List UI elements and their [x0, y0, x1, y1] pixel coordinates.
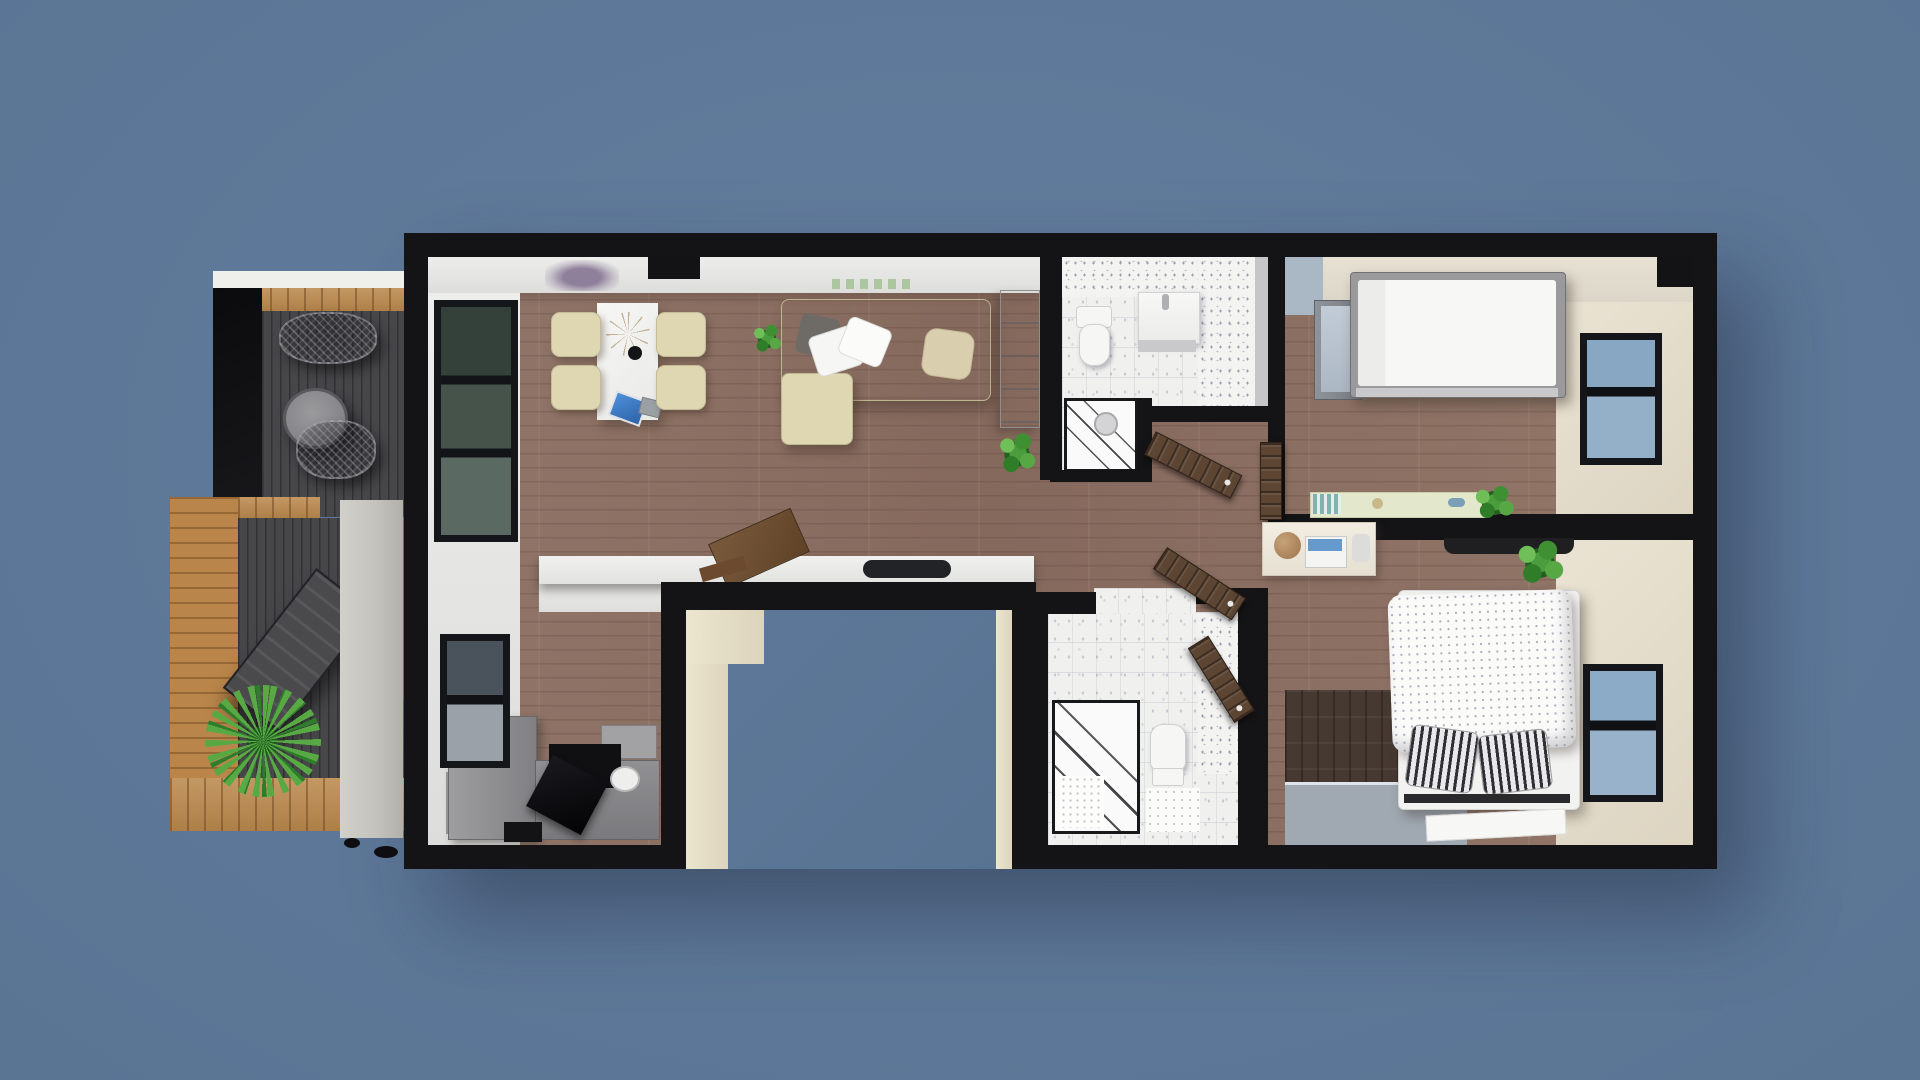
plant-by-cabinet — [993, 426, 1041, 482]
kitchen-sink — [610, 766, 640, 792]
notch-reveal-step — [686, 610, 764, 664]
kitchen-floor-mat — [504, 822, 542, 842]
dining-chair-3 — [656, 312, 706, 357]
terrace-glass-panel — [213, 288, 262, 500]
teddy-bear — [1274, 532, 1301, 559]
bathroom-top-wall-step — [1137, 398, 1152, 482]
bedroom-top-corner-block — [1657, 257, 1693, 287]
bathroom-bottom-wall-right — [1238, 588, 1268, 869]
clerestory-window-slot — [648, 257, 700, 279]
bed-pillow-striped-1 — [1404, 724, 1480, 795]
notch-wall-right — [1012, 610, 1048, 869]
dining-chair-4 — [656, 365, 706, 410]
counter-return-face — [539, 584, 661, 612]
floor-plan-render — [0, 0, 1920, 1080]
wall-art — [545, 260, 619, 291]
notch-wall-left — [661, 582, 686, 869]
concrete-pillar — [340, 500, 403, 838]
wire-chair-1 — [279, 312, 377, 364]
gray-cabinet — [1000, 290, 1040, 428]
door-handle-icon — [1226, 600, 1234, 608]
serving-tray — [863, 560, 951, 578]
bed-top-mattress — [1358, 280, 1556, 386]
living-north-wall-face — [428, 257, 1040, 293]
bedroom-top-door-leaf — [1260, 442, 1282, 520]
outer-wall-bottom-left — [404, 845, 686, 869]
palm-plant — [205, 685, 321, 797]
sideboard-fish-trinket — [1448, 498, 1465, 507]
bathroom-top-wall-face-e — [1198, 257, 1255, 415]
toilet-bottom-tank — [1152, 768, 1184, 786]
bathroom-top-wall-left — [1040, 257, 1062, 480]
shower-tray-mat — [1060, 776, 1104, 828]
outer-wall-bottom-right — [1012, 845, 1717, 869]
outer-wall-right — [1693, 233, 1717, 869]
terrace-roof-strip — [213, 271, 404, 288]
bathroom-top-wall-bottom-right — [1152, 406, 1268, 422]
toilet-bottom-bowl — [1150, 724, 1186, 772]
wire-chair-2 — [296, 420, 376, 479]
washbasin-unit — [1138, 292, 1200, 344]
notch-wall-top — [661, 582, 1036, 610]
outer-wall-top — [404, 233, 1717, 257]
green-wall-decor — [832, 279, 914, 289]
shower-head-top — [1094, 412, 1118, 436]
plant-by-sofa — [748, 320, 786, 358]
washbasin-faucet — [1162, 294, 1169, 310]
bath-mat — [1146, 788, 1200, 832]
door-handle-icon — [1235, 704, 1243, 712]
washbasin-ledge — [1138, 340, 1196, 352]
sideboard-books — [1313, 494, 1341, 514]
outer-wall-left — [404, 233, 428, 869]
bathroom-bedroom-wall-face — [1255, 257, 1269, 415]
sofa-chaise — [781, 373, 853, 445]
bathroom-bottom-niche — [1094, 588, 1196, 614]
toilet-top-bowl — [1079, 324, 1110, 366]
dining-chair-2 — [551, 365, 601, 410]
notch-reveal-left — [686, 664, 728, 869]
bed-bottom-headboard — [1404, 794, 1570, 803]
sideboard-moon-trinket — [1372, 498, 1383, 509]
kitchen-window — [440, 634, 510, 768]
desk-laptop-screen — [1308, 539, 1342, 551]
living-tall-window — [434, 300, 518, 542]
bed-pillow-striped-2 — [1477, 728, 1554, 796]
pillar-foot-2 — [374, 846, 398, 858]
dining-chair-1 — [551, 312, 601, 357]
desk-chair — [1352, 534, 1370, 562]
sofa-pillow-beige — [920, 327, 976, 381]
door-handle-icon — [1223, 478, 1231, 486]
bed-top-foot-rail — [1356, 388, 1558, 397]
plant-divider-bottom — [1508, 534, 1572, 592]
plant-divider-top — [1466, 482, 1522, 524]
pillar-foot-1 — [344, 838, 360, 848]
bedroom-bottom-window — [1583, 664, 1663, 802]
bedroom-top-window — [1580, 333, 1662, 465]
bathroom-bottom-wall-top — [1036, 592, 1096, 614]
table-bowl — [628, 346, 642, 360]
notch-reveal-right — [996, 610, 1012, 869]
